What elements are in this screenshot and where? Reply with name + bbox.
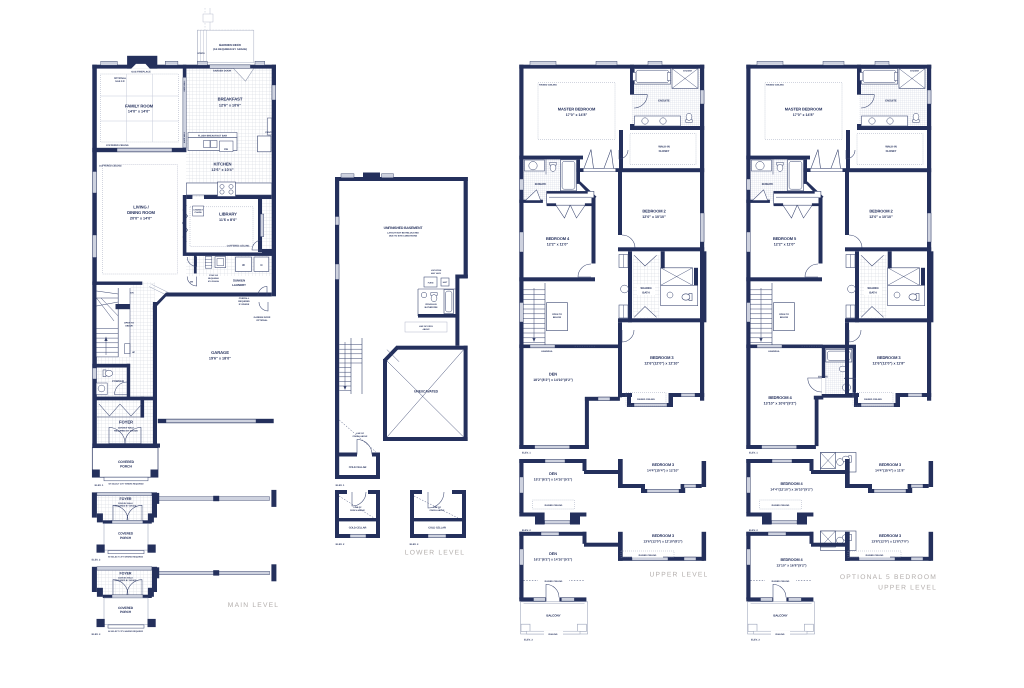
svg-text:IF GRADE: IF GRADE (239, 303, 250, 306)
svg-text:CLOSET: CLOSET (886, 149, 897, 153)
svg-text:REQUIRED BY GRADE: REQUIRED BY GRADE (114, 429, 138, 432)
svg-text:RAISED CEILING: RAISED CEILING (864, 398, 882, 401)
svg-text:UNEXCAVATED: UNEXCAVATED (414, 390, 439, 394)
svg-text:RAISED CEILING: RAISED CEILING (866, 554, 884, 557)
svg-text:RAISED CEILING: RAISED CEILING (772, 580, 790, 583)
svg-text:13’6”(12’0”) x 12’10”(8’2”): 13’6”(12’0”) x 12’10”(8’2”) (644, 540, 683, 544)
svg-text:W: W (242, 263, 245, 267)
svg-text:DN: DN (130, 292, 134, 295)
svg-text:COFFERED CEILING: COFFERED CEILING (99, 165, 122, 168)
svg-text:HANDRAIL: HANDRAIL (768, 350, 780, 353)
svg-text:D: D (260, 263, 262, 267)
svg-text:ENSUITE: ENSUITE (658, 99, 670, 103)
svg-text:ROUGH-IN: ROUGH-IN (425, 303, 436, 306)
svg-text:CLOSET: CLOSET (659, 149, 670, 153)
svg-text:PORCH: PORCH (120, 610, 132, 614)
svg-text:FOYER: FOYER (120, 571, 132, 575)
svg-text:CHASE: CHASE (195, 211, 203, 214)
svg-text:ELEV. 3: ELEV. 3 (92, 633, 101, 636)
svg-text:SHOWER: SHOWER (910, 70, 920, 73)
svg-text:RAILING: RAILING (119, 306, 127, 309)
svg-text:MASTER BEDROOM: MASTER BEDROOM (785, 107, 823, 112)
svg-text:PORCH: PORCH (120, 465, 132, 469)
svg-text:16’2”(8’2”) x 14’10”(9’2”): 16’2”(8’2”) x 14’10”(9’2”) (534, 558, 572, 562)
svg-text:RAILING: RAILING (776, 633, 785, 636)
svg-text:LAUNDRY: LAUNDRY (232, 283, 246, 287)
svg-text:RAISED CEILING: RAISED CEILING (766, 84, 784, 87)
svg-text:GAS FIREPLACE: GAS FIREPLACE (131, 71, 151, 74)
svg-text:12’6” x 10’4”: 12’6” x 10’4” (211, 168, 233, 172)
svg-text:ELEV. 1: ELEV. 1 (95, 484, 104, 487)
svg-text:BEDROOM 4: BEDROOM 4 (780, 558, 803, 562)
svg-text:BEDROOM 2: BEDROOM 2 (642, 209, 666, 214)
svg-text:SHOWER: SHOWER (683, 70, 693, 73)
svg-text:MASTER BEDROOM: MASTER BEDROOM (558, 107, 596, 112)
svg-text:RAISED CEILING: RAISED CEILING (639, 554, 657, 557)
svg-text:OPEN TO: OPEN TO (552, 313, 562, 316)
svg-text:POWDER: POWDER (112, 380, 124, 383)
svg-text:OPEN TO: OPEN TO (779, 313, 789, 316)
svg-text:PORCH ABOVE: PORCH ABOVE (430, 509, 445, 512)
svg-text:ELEV. 2: ELEV. 2 (522, 529, 531, 532)
svg-text:ELEV. 1: ELEV. 1 (749, 452, 758, 455)
svg-text:COLD CELLAR: COLD CELLAR (349, 466, 367, 469)
svg-text:REQUIRED: REQUIRED (208, 277, 219, 280)
svg-text:MAIN LEVEL: MAIN LEVEL (228, 602, 279, 609)
svg-text:UNFINISHED BASEMENT: UNFINISHED BASEMENT (384, 226, 424, 230)
svg-text:12’2” x 11’0”: 12’2” x 11’0” (547, 243, 569, 247)
svg-text:FOYER: FOYER (120, 497, 132, 501)
svg-text:17’0” x 14’8”: 17’0” x 14’8” (793, 113, 815, 117)
svg-text:OPTIONAL 5 BEDROOM: OPTIONAL 5 BEDROOM (840, 574, 937, 581)
svg-text:LAYOUT MAY BE RELOCATED: LAYOUT MAY BE RELOCATED (387, 232, 419, 235)
svg-text:PORCH: PORCH (120, 536, 132, 540)
svg-text:BEDROOM 3: BEDROOM 3 (879, 463, 901, 467)
svg-text:FOYER: FOYER (119, 420, 133, 425)
svg-text:12’0” x 10’10”: 12’0” x 10’10” (642, 215, 666, 219)
svg-text:14’4”(15’4”) x 11’8”: 14’4”(15’4”) x 11’8” (875, 469, 905, 473)
svg-text:BATH: BATH (642, 290, 649, 294)
svg-text:STEPS: STEPS (197, 52, 205, 55)
svg-text:20’0” x 14’0”: 20’0” x 14’0” (130, 217, 152, 221)
svg-text:BEDROOM 3: BEDROOM 3 (879, 534, 901, 538)
svg-text:HANDRAIL: HANDRAIL (541, 350, 553, 353)
svg-text:DEN: DEN (549, 552, 557, 556)
svg-text:ELEV. 3: ELEV. 3 (751, 639, 760, 642)
svg-text:FURN: FURN (428, 282, 434, 285)
svg-text:STEP AS: STEP AS (209, 274, 218, 277)
svg-text:GARDEN DECK: GARDEN DECK (219, 43, 242, 47)
svg-text:COVERED: COVERED (118, 460, 135, 464)
svg-text:ELEV. 1: ELEV. 1 (336, 484, 345, 487)
svg-text:13’10” x 16’8”(9’2”): 13’10” x 16’8”(9’2”) (776, 564, 806, 568)
svg-text:BEDROOM 4: BEDROOM 4 (546, 236, 570, 241)
svg-text:LIVING /: LIVING / (133, 205, 149, 210)
svg-text:BY GRADE: BY GRADE (208, 280, 220, 283)
svg-text:OVERALL: OVERALL (239, 297, 250, 300)
svg-text:FAMILY ROOM: FAMILY ROOM (125, 104, 154, 109)
svg-text:18’2”(8’2”) x 14’10”(8’2”): 18’2”(8’2”) x 14’10”(8’2”) (533, 378, 573, 382)
svg-text:UPPER LEVEL: UPPER LEVEL (650, 572, 709, 579)
svg-text:GARDEN DOOR: GARDEN DOOR (254, 316, 271, 319)
svg-text:GARAGE: GARAGE (211, 350, 229, 355)
svg-text:LINE OF DECK: LINE OF DECK (419, 325, 434, 328)
svg-text:17’0” x 14’8”: 17’0” x 14’8” (566, 113, 588, 117)
svg-text:UP: UP (132, 351, 136, 354)
svg-text:LOWER LEVEL: LOWER LEVEL (405, 550, 465, 557)
svg-text:CONVEX WALK: CONVEX WALK (118, 576, 133, 579)
svg-text:RAISED CEILING: RAISED CEILING (637, 398, 655, 401)
svg-text:ELEV. 3: ELEV. 3 (410, 543, 419, 546)
svg-text:W/ SELECT CITY WHERE REQUIRED: W/ SELECT CITY WHERE REQUIRED (108, 483, 144, 486)
svg-text:BREAKFAST: BREAKFAST (218, 97, 243, 102)
svg-text:RAILING: RAILING (549, 633, 558, 636)
svg-text:ELEV. 2: ELEV. 2 (92, 559, 101, 562)
svg-text:MAY VARY: MAY VARY (431, 272, 442, 275)
svg-text:BATHROOM: BATHROOM (425, 306, 438, 309)
svg-text:BEDROOM 3: BEDROOM 3 (877, 355, 901, 360)
svg-text:ELEV. 2: ELEV. 2 (749, 529, 758, 532)
svg-text:12’6”(12’0”) x 12’10”: 12’6”(12’0”) x 12’10” (644, 362, 679, 366)
svg-text:ABOVE: ABOVE (125, 325, 133, 328)
svg-text:BATH: BATH (869, 290, 876, 294)
svg-text:HWT: HWT (443, 281, 448, 284)
svg-text:15’2”(8’2”) x 14’10”(9’2”): 15’2”(8’2”) x 14’10”(9’2”) (534, 478, 572, 482)
svg-text:DN: DN (190, 280, 194, 283)
svg-text:14’0” x 14’0”: 14’0” x 14’0” (128, 110, 150, 114)
svg-text:W/ SELECT CITY WHERE REQUIRED: W/ SELECT CITY WHERE REQUIRED (108, 556, 144, 559)
svg-text:COFFERED CEILING: COFFERED CEILING (106, 144, 129, 147)
svg-text:ENSUITE: ENSUITE (762, 182, 774, 186)
svg-text:13’8”(12’0”) x 11’8”(7’0”): 13’8”(12’0”) x 11’8”(7’0”) (871, 540, 908, 544)
svg-text:12’2” x 11’0”: 12’2” x 11’0” (774, 243, 796, 247)
svg-text:BEDROOM 3: BEDROOM 3 (652, 463, 674, 467)
svg-text:BEDROOM 4: BEDROOM 4 (780, 482, 803, 486)
svg-text:GAS F.P.: GAS F.P. (115, 80, 125, 83)
svg-text:BEDROOM 3: BEDROOM 3 (650, 355, 674, 360)
svg-text:13’10” x 10’6”(9’2”): 13’10” x 10’6”(9’2”) (764, 402, 798, 406)
svg-text:11’6 x 8’0”: 11’6 x 8’0” (219, 218, 237, 222)
svg-text:OPEN TO: OPEN TO (124, 322, 134, 325)
svg-text:ABOVE: ABOVE (422, 328, 430, 331)
svg-text:GARDEN DOOR: GARDEN DOOR (213, 70, 231, 73)
svg-text:PORCH ABOVE: PORCH ABOVE (353, 435, 368, 438)
svg-text:PORCH ABOVE: PORCH ABOVE (350, 509, 365, 512)
svg-text:BALCONY: BALCONY (773, 614, 787, 618)
svg-text:RAISED CEILING: RAISED CEILING (772, 504, 790, 507)
svg-text:PANTRY: PANTRY (265, 131, 274, 134)
svg-text:14’4”(15’4”) x 12’10”: 14’4”(15’4”) x 12’10” (647, 469, 679, 473)
svg-text:12’6”(12’0”) x 11’8”: 12’6”(12’0”) x 11’8” (873, 362, 906, 366)
svg-text:ELEV. 3: ELEV. 3 (524, 639, 533, 642)
svg-text:COLD CELLAR: COLD CELLAR (428, 527, 446, 530)
svg-text:FLUSH BREAKFAST BAR: FLUSH BREAKFAST BAR (198, 134, 227, 137)
svg-text:DINING ROOM: DINING ROOM (127, 210, 155, 215)
svg-text:ENSUITE: ENSUITE (535, 182, 547, 186)
svg-text:KNEE WALL: KNEE WALL (183, 80, 186, 92)
svg-text:KNEE WALL: KNEE WALL (183, 131, 186, 143)
svg-text:OPTIONAL: OPTIONAL (256, 319, 268, 322)
svg-text:12’0” x 10’10”: 12’0” x 10’10” (869, 215, 893, 219)
svg-text:KITCHEN: KITCHEN (214, 162, 232, 167)
svg-text:W/ SELECT CITY WHERE REQUIRED: W/ SELECT CITY WHERE REQUIRED (108, 630, 144, 633)
svg-text:14’4”(12’10”) x 16’10”(9’2”): 14’4”(12’10”) x 16’10”(9’2”) (770, 488, 812, 492)
svg-text:BEDROOM 5: BEDROOM 5 (773, 236, 797, 241)
svg-text:DEN: DEN (549, 472, 557, 476)
svg-text:LINE OF: LINE OF (356, 432, 365, 435)
svg-text:(AS REQUIRED BY GRADE): (AS REQUIRED BY GRADE) (213, 48, 247, 51)
svg-text:RAISED CEILING: RAISED CEILING (545, 580, 563, 583)
svg-text:BEDROOM 4: BEDROOM 4 (768, 395, 792, 400)
svg-text:CONVEX WALK: CONVEX WALK (118, 427, 135, 430)
svg-text:BELOW: BELOW (780, 316, 789, 319)
svg-text:CHIMNEY: CHIMNEY (193, 209, 203, 212)
svg-text:19’6” x 18’0”: 19’6” x 18’0” (209, 357, 231, 361)
svg-text:DEN: DEN (549, 372, 557, 377)
svg-text:BEDROOM 2: BEDROOM 2 (869, 209, 893, 214)
svg-text:ENSUITE: ENSUITE (885, 99, 897, 103)
svg-text:12’6” x 10’6”: 12’6” x 10’6” (219, 104, 241, 108)
svg-text:BALCONY: BALCONY (546, 614, 560, 618)
svg-text:RAISED CEILING: RAISED CEILING (545, 504, 563, 507)
svg-text:BEDROOM 3: BEDROOM 3 (652, 534, 674, 538)
svg-text:LIBRARY: LIBRARY (219, 212, 237, 217)
svg-text:COLD CELLAR: COLD CELLAR (349, 527, 367, 530)
svg-text:ELEV. 2: ELEV. 2 (336, 543, 345, 546)
svg-text:RAISED CEILING: RAISED CEILING (539, 84, 557, 87)
svg-text:ELEV. 1: ELEV. 1 (522, 452, 531, 455)
svg-text:LINE OF: LINE OF (354, 506, 363, 509)
svg-text:LINE OF: LINE OF (433, 506, 442, 509)
svg-text:COFFERED CEILING: COFFERED CEILING (227, 245, 250, 248)
svg-text:ENSUITE: ENSUITE (818, 376, 828, 379)
svg-text:LOCATION: LOCATION (431, 269, 442, 272)
svg-text:DUE TO SITE CONDITIONS: DUE TO SITE CONDITIONS (389, 235, 418, 238)
svg-text:UPPER LEVEL: UPPER LEVEL (878, 585, 937, 592)
svg-text:CONVEX WALK: CONVEX WALK (118, 502, 133, 505)
svg-text:REQUIRED: REQUIRED (238, 300, 250, 303)
svg-text:BELOW: BELOW (553, 316, 562, 319)
